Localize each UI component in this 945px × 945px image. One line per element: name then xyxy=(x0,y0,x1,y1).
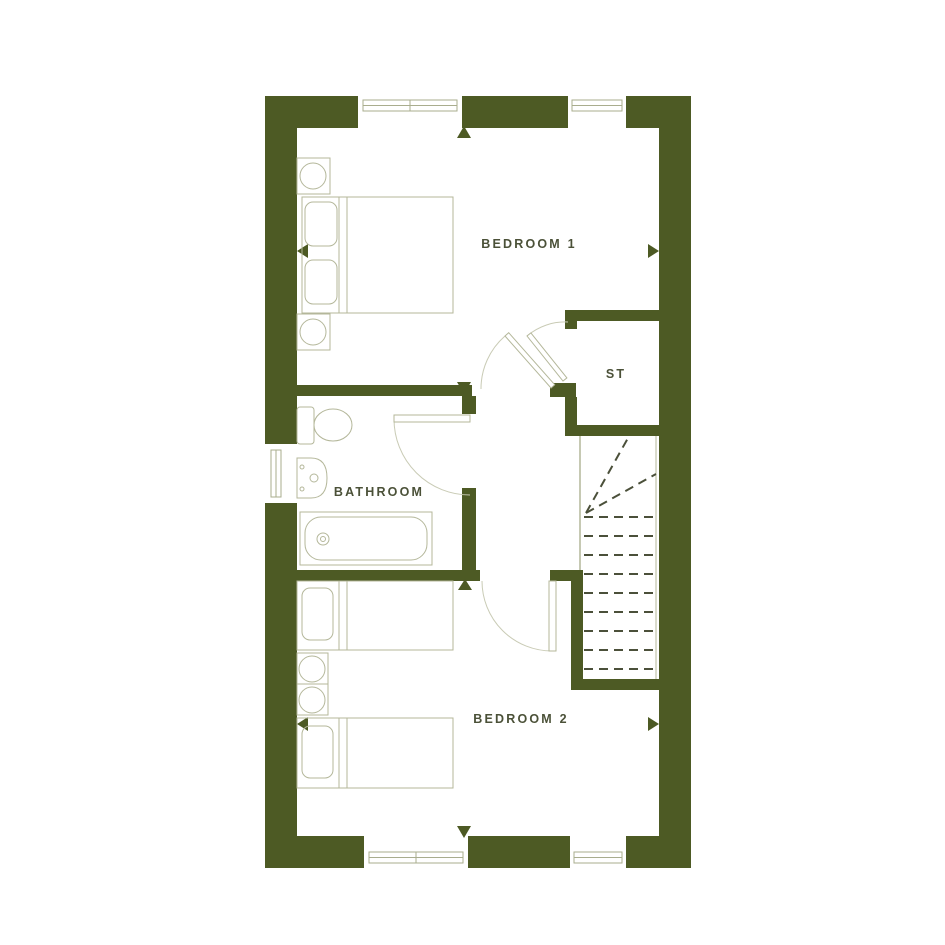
door-bedroom1 xyxy=(481,333,555,389)
pillow xyxy=(302,588,333,640)
door-swing-arc xyxy=(394,419,470,495)
door-leaf xyxy=(394,415,470,422)
bathtub-outer xyxy=(300,512,432,565)
floor-plan: BEDROOM 1 ST BATHROOM BEDROOM 2 xyxy=(0,0,945,945)
room-label-bedroom2: BEDROOM 2 xyxy=(446,712,596,726)
wall-storage-top xyxy=(565,310,659,321)
stool-bottom xyxy=(297,684,328,715)
window-bottom-right xyxy=(570,836,626,872)
wall-bedroom1-hall xyxy=(297,385,472,396)
room-label-bathroom: BATHROOM xyxy=(304,485,454,499)
staircase xyxy=(580,436,656,679)
marker-left-wall-bedroom2 xyxy=(297,717,308,731)
wall-right xyxy=(659,96,691,868)
windows xyxy=(263,94,626,872)
door-swing-arc xyxy=(481,336,505,389)
marker-right-wall-bedroom1 xyxy=(648,244,659,258)
window-top-left xyxy=(358,94,462,130)
wall-storage-bottom xyxy=(565,425,659,436)
floor-plan-drawing xyxy=(0,0,945,945)
marker-right-wall-bedroom2 xyxy=(648,717,659,731)
pillow xyxy=(302,726,333,778)
bedroom2-furniture xyxy=(297,581,453,788)
wall-stairs-left xyxy=(571,581,583,690)
wall-bathroom-door-stub xyxy=(462,396,476,414)
pillow xyxy=(305,202,337,246)
bathtub-drain-center xyxy=(321,537,326,542)
basin-drain xyxy=(310,474,318,482)
door-swing-arc xyxy=(482,581,552,651)
wall-stairs-bottom xyxy=(571,679,659,690)
stair-treads xyxy=(584,517,655,669)
wall-hall-bedroom2-stub xyxy=(550,570,583,581)
door-leaf xyxy=(549,581,556,651)
wall-bathroom-bedroom2 xyxy=(297,570,480,581)
lamp-top xyxy=(300,163,326,189)
wall-top xyxy=(265,96,691,128)
pillow xyxy=(305,260,337,304)
door-storage xyxy=(527,322,568,381)
bathtub-inner xyxy=(305,517,427,560)
window-bottom-left xyxy=(364,836,468,872)
room-label-bedroom1: BEDROOM 1 xyxy=(454,237,604,251)
door-bathroom xyxy=(394,415,470,495)
outer-walls xyxy=(265,96,691,868)
room-label-storage: ST xyxy=(591,367,641,381)
window-top-right xyxy=(568,94,626,130)
stair-winder-lines xyxy=(586,438,656,513)
toilet-bowl xyxy=(314,409,352,441)
door-leaf xyxy=(527,333,567,381)
bathtub-drain xyxy=(317,533,329,545)
stool-top xyxy=(297,653,328,684)
toilet-cistern xyxy=(297,407,314,444)
stool-bottom-seat xyxy=(299,687,325,713)
window-bathroom-left xyxy=(263,444,298,503)
dimension-markers xyxy=(297,126,659,838)
stool-top-seat xyxy=(299,656,325,682)
door-bedroom2 xyxy=(482,581,556,651)
lamp-bottom xyxy=(300,319,326,345)
door-swing-arc xyxy=(527,322,568,336)
double-bed xyxy=(302,197,453,313)
bedroom1-furniture xyxy=(297,158,453,350)
basin-tap xyxy=(300,465,304,469)
wall-bathroom-right xyxy=(462,488,476,581)
wall-bottom xyxy=(265,836,691,868)
